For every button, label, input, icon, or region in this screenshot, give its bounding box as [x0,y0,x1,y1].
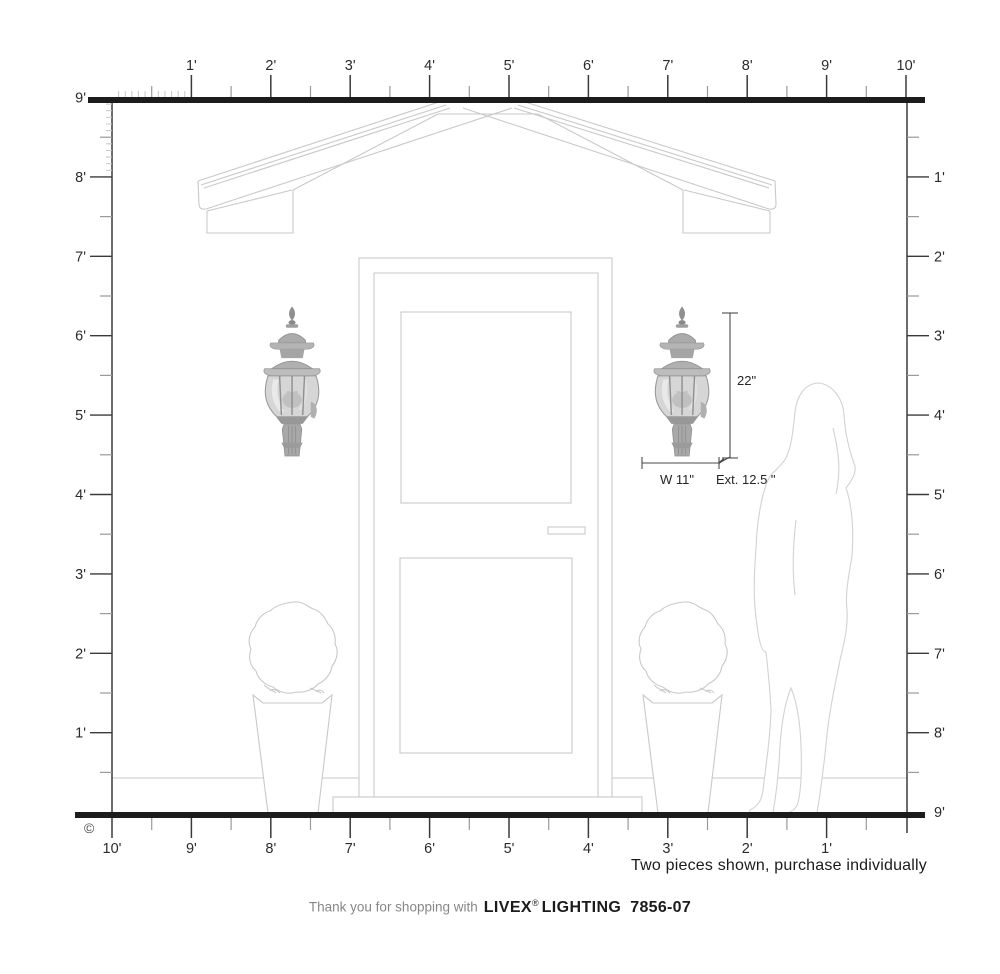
left-ruler-label: 4' [75,488,86,504]
wall-lantern-photo-right [654,306,710,456]
height-dimension-line [722,313,738,458]
top-ruler-label: 4' [424,58,435,74]
top-ruler-label: 8' [742,58,753,74]
copyright-symbol: © [84,820,94,836]
width-dimension-line [642,457,719,469]
bottom-ruler-label: 1' [821,841,832,857]
left-ruler-label: 1' [75,726,86,742]
extension-dimension-label: Ext. 12.5 " [716,472,776,487]
right-ruler-label: 5' [934,488,945,504]
scene-drawing [112,101,907,814]
door-step [333,797,642,814]
top-ruler-label: 2' [265,58,276,74]
right-ruler-label: 8' [934,726,945,742]
height-dimension-label: 22" [737,373,756,388]
left-ruler-label: 6' [75,329,86,345]
bottom-ruler-label: 3' [662,841,673,857]
brand-name-2: LIGHTING [542,899,622,916]
right-ruler-label: 6' [934,567,945,583]
right-ruler-label: 7' [934,646,945,662]
left-ruler-label: 2' [75,646,86,662]
bottom-ruler-label: 9' [186,841,197,857]
right-ruler-label: 4' [934,408,945,424]
product-scale-diagram: 1'2'3'4'5'6'7'8'9'10'9'8'7'6'5'4'3'2'1'1… [0,0,1000,974]
woman-silhouette [749,383,855,813]
left-ruler-label: 9' [75,91,86,107]
right-ruler-label: 9' [934,805,945,821]
left-ruler-label: 7' [75,249,86,265]
bottom-ruler-label: 6' [424,841,435,857]
bottom-ruler-label: 7' [345,841,356,857]
topiary-planter-right [639,602,727,813]
right-ruler-label: 3' [934,329,945,345]
right-ruler-label: 2' [934,249,945,265]
diagram-canvas: 1'2'3'4'5'6'7'8'9'10'9'8'7'6'5'4'3'2'1'1… [0,0,1000,974]
left-ruler-label: 5' [75,408,86,424]
left-ruler-label: 8' [75,170,86,186]
top-ruler-label: 6' [583,58,594,74]
bottom-ruler-label: 2' [742,841,753,857]
bottom-ruler-label: 8' [265,841,276,857]
topiary-planter-left [249,602,337,813]
gable-roof-drawing [198,101,776,233]
left-ruler-label: 3' [75,567,86,583]
footer-thanks-text: Thank you for shopping with [309,900,478,915]
top-ruler-label: 1' [186,58,197,74]
wall-lantern-photo-left [264,306,320,456]
right-ruler-label: 1' [934,170,945,186]
brand-name: LIVEX [484,899,532,916]
entry-door-drawing [359,258,612,797]
top-ruler-label: 3' [345,58,356,74]
top-ruler-bar [88,97,925,103]
top-ruler-label: 10' [897,58,916,74]
bottom-ruler-label: 4' [583,841,594,857]
bottom-ruler-label: 10' [103,841,122,857]
registered-mark: ® [532,898,539,908]
width-dimension-label: W 11" [660,472,694,487]
model-number: 7856-07 [630,899,691,916]
purchase-note: Two pieces shown, purchase individually [0,857,927,875]
top-ruler-label: 9' [821,58,832,74]
bottom-ruler-label: 5' [504,841,515,857]
top-ruler-label: 5' [504,58,515,74]
footer-tagline: Thank you for shopping withLIVEX®LIGHTIN… [0,898,1000,917]
bottom-ruler-bar [75,812,925,818]
top-ruler-label: 7' [662,58,673,74]
